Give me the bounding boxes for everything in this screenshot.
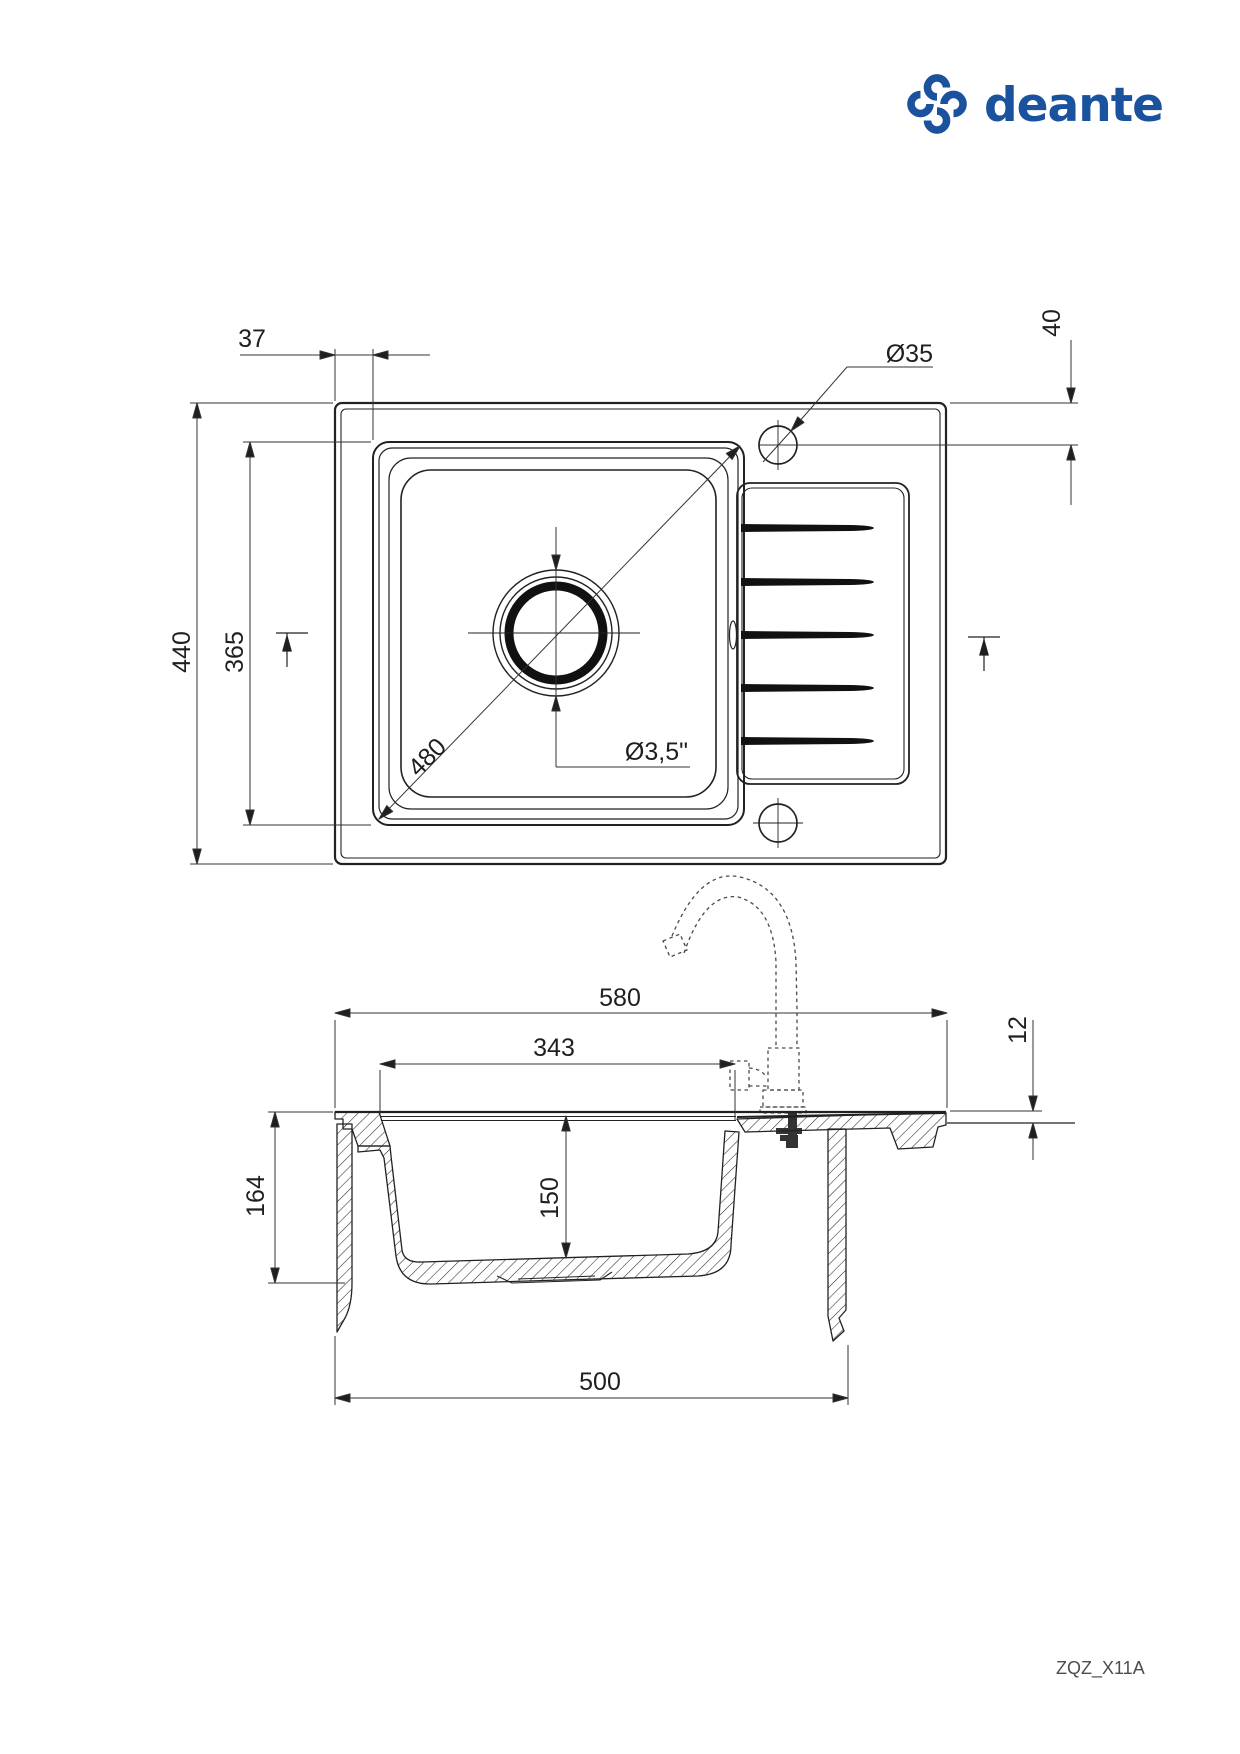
dim-bowl-length-label: 365 — [221, 631, 249, 673]
left-skirt-section — [337, 1124, 352, 1332]
dim-drain-dia-label: Ø3,5" — [625, 738, 688, 766]
dim-overall-depth-label: 440 — [168, 631, 196, 673]
drain-plan — [468, 570, 640, 696]
model-code: ZQZ_X11A — [1056, 1658, 1145, 1679]
section-mark-left — [276, 633, 308, 667]
drawing-page: deante — [0, 0, 1240, 1754]
dim-164 — [268, 1112, 345, 1283]
dim-left-offset-label: 37 — [238, 325, 266, 353]
dim-bowl-diagonal-label: 480 — [403, 733, 452, 782]
dim-tap-axis-label: 343 — [533, 1034, 575, 1062]
overflow-mark — [730, 621, 737, 649]
dim-d35 — [763, 367, 933, 462]
dim-overall-height-label: 164 — [242, 1175, 270, 1217]
dim-bowl-depth-label: 150 — [536, 1177, 564, 1219]
dim-cutout-width-label: 500 — [579, 1368, 621, 1396]
sink-technical-drawing: deante — [0, 0, 1240, 1754]
dim-tap-hole-offset-label: 40 — [1038, 309, 1066, 337]
sink-section-body — [335, 1112, 946, 1341]
tap-hole-bottom — [753, 798, 803, 848]
drainboard-ribs — [741, 524, 874, 745]
section-mark-right — [968, 637, 1000, 671]
dim-440 — [190, 403, 333, 864]
dim-d35in — [552, 527, 690, 767]
dim-overall-width-label: 580 — [599, 984, 641, 1012]
dim-tap-hole-dia-label: Ø35 — [886, 340, 933, 368]
section-view: 580 343 164 150 — [242, 876, 1075, 1405]
support-rib-section — [828, 1129, 846, 1341]
dim-580 — [335, 1009, 947, 1108]
deante-logo: deante — [907, 74, 1163, 134]
deante-logo-text: deante — [984, 78, 1163, 133]
top-view: 37 440 365 40 — [168, 309, 1078, 864]
deante-logo-icon — [907, 74, 967, 134]
dim-rim-height-label: 12 — [1004, 1016, 1032, 1044]
